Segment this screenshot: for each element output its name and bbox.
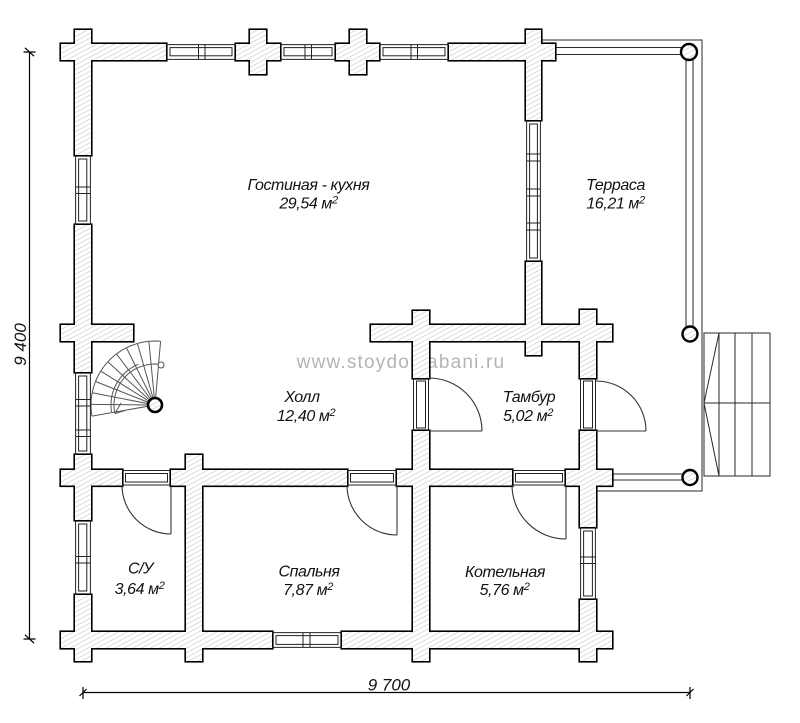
svg-text:9 700: 9 700 — [368, 676, 411, 695]
svg-text:Терраса: Терраса — [586, 177, 645, 194]
svg-text:Тамбур: Тамбур — [503, 389, 556, 406]
svg-text:С/У: С/У — [128, 561, 155, 578]
svg-text:12,40 м2: 12,40 м2 — [277, 407, 336, 425]
svg-text:Гостиная - кухня: Гостиная - кухня — [248, 177, 371, 194]
svg-text:16,21 м2: 16,21 м2 — [586, 195, 645, 213]
svg-text:3,64 м2: 3,64 м2 — [115, 580, 165, 598]
svg-text:www.stoydomabani.ru: www.stoydomabani.ru — [296, 352, 506, 373]
svg-text:Холл: Холл — [283, 389, 320, 406]
svg-text:9 400: 9 400 — [11, 323, 30, 366]
svg-text:29,54 м2: 29,54 м2 — [278, 195, 338, 213]
svg-text:7,87 м2: 7,87 м2 — [283, 581, 333, 599]
svg-text:5,02 м2: 5,02 м2 — [503, 407, 553, 425]
svg-text:Котельная: Котельная — [465, 564, 546, 581]
svg-text:5,76 м2: 5,76 м2 — [480, 581, 530, 599]
svg-text:Спальня: Спальня — [278, 564, 340, 581]
